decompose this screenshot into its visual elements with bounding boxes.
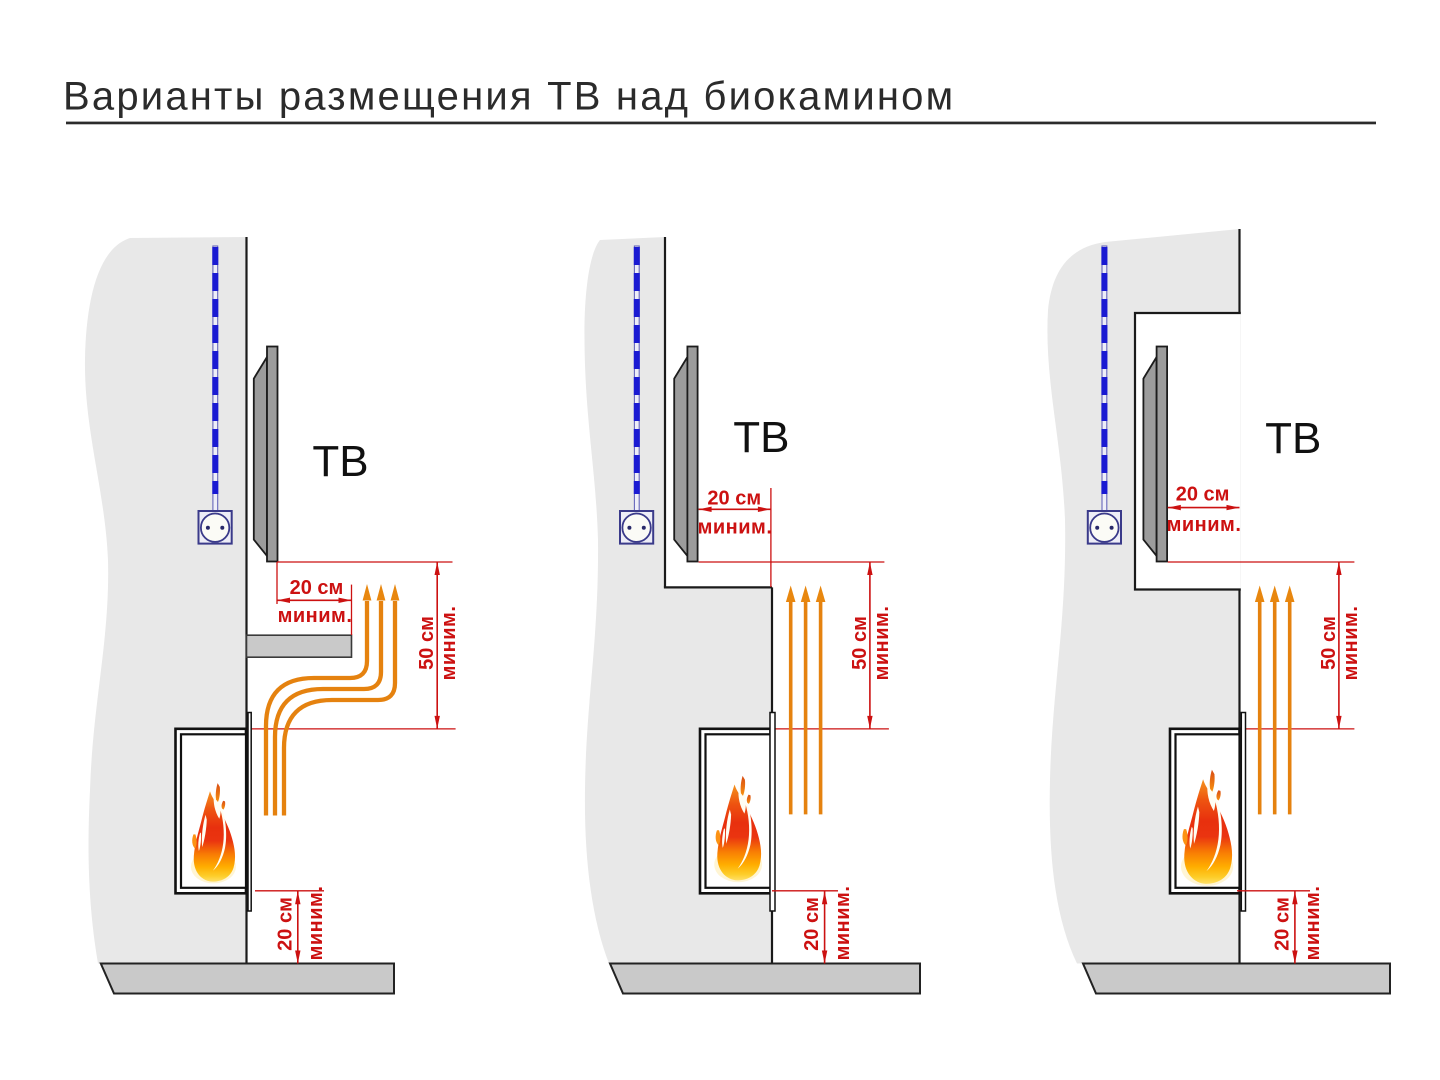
svg-text:миним.: миним. xyxy=(832,886,854,961)
svg-text:Варианты размещения ТВ над био: Варианты размещения ТВ над биокамином xyxy=(63,75,955,119)
svg-text:50 см: 50 см xyxy=(849,616,871,670)
svg-text:миним.: миним. xyxy=(1302,886,1324,961)
svg-text:ТВ: ТВ xyxy=(312,437,368,486)
svg-text:миним.: миним. xyxy=(1340,606,1362,681)
svg-text:20 см: 20 см xyxy=(290,577,344,599)
svg-text:20 см: 20 см xyxy=(274,897,296,951)
svg-text:миним.: миним. xyxy=(305,886,327,961)
svg-text:миним.: миним. xyxy=(871,606,893,681)
svg-text:миним.: миним. xyxy=(278,605,353,627)
svg-text:ТВ: ТВ xyxy=(1265,414,1321,463)
svg-text:50 см: 50 см xyxy=(416,616,438,670)
svg-text:миним.: миним. xyxy=(1167,514,1242,536)
svg-text:ТВ: ТВ xyxy=(733,413,789,462)
svg-text:20 см: 20 см xyxy=(1176,484,1230,506)
svg-text:50 см: 50 см xyxy=(1318,616,1340,670)
svg-text:20 см: 20 см xyxy=(801,897,823,951)
svg-text:20 см: 20 см xyxy=(707,488,761,510)
svg-text:20 см: 20 см xyxy=(1271,897,1293,951)
svg-text:миним.: миним. xyxy=(698,517,773,539)
svg-text:миним.: миним. xyxy=(438,606,460,681)
